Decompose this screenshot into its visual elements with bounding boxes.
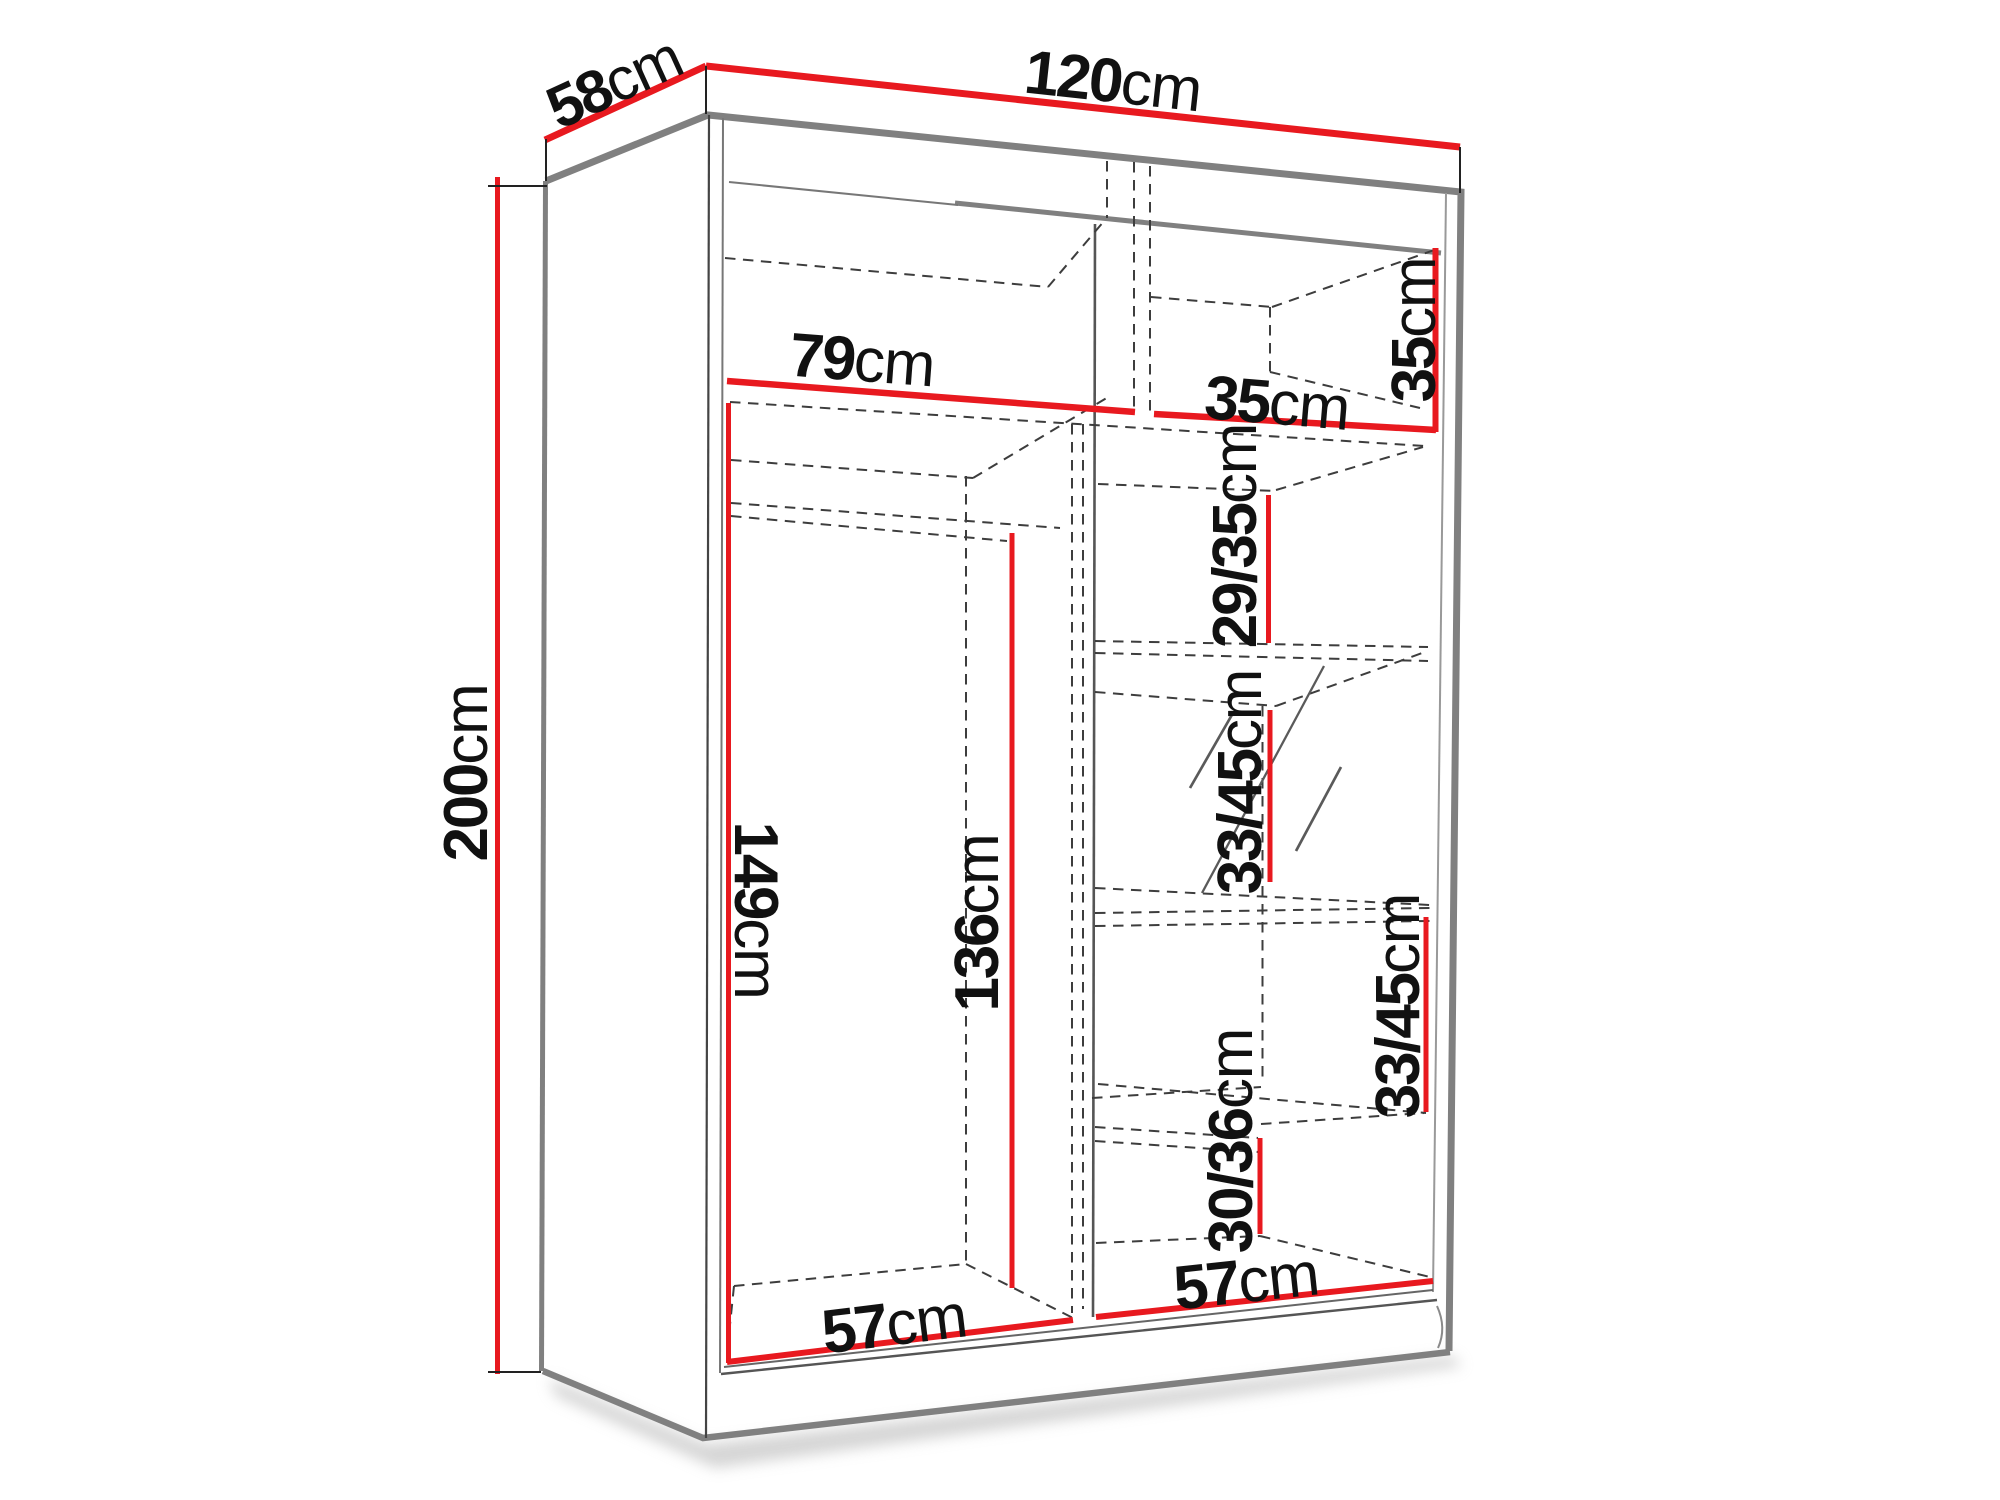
svg-text:136cm: 136cm — [943, 834, 1012, 1011]
svg-text:79cm: 79cm — [787, 321, 937, 401]
svg-text:200cm: 200cm — [432, 684, 501, 861]
svg-text:149cm: 149cm — [721, 821, 790, 998]
svg-text:35cm: 35cm — [1380, 258, 1449, 403]
svg-text:33/45cm: 33/45cm — [1364, 894, 1433, 1118]
svg-text:33/45cm: 33/45cm — [1206, 670, 1275, 894]
svg-text:30/36cm: 30/36cm — [1197, 1029, 1266, 1253]
svg-text:29/35cm: 29/35cm — [1201, 424, 1270, 648]
